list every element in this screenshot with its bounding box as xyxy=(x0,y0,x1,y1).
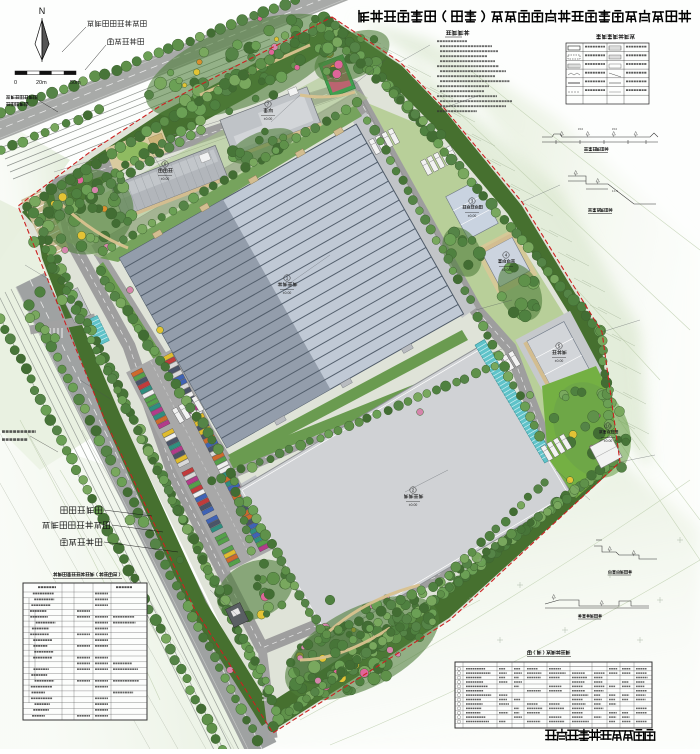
svg-text:50m: 50m xyxy=(70,80,81,86)
svg-text:15.0: 15.0 xyxy=(612,127,618,131)
svg-text:±0.00: ±0.00 xyxy=(283,291,292,295)
svg-text:1: 1 xyxy=(286,276,289,281)
svg-text:2: 2 xyxy=(412,488,415,493)
svg-text:±0.00: ±0.00 xyxy=(502,268,511,272)
svg-text:±0.00: ±0.00 xyxy=(468,214,477,218)
svg-text:±0.00: ±0.00 xyxy=(161,177,170,181)
svg-text:±0.00: ±0.00 xyxy=(409,503,418,507)
svg-text:5: 5 xyxy=(558,344,561,349)
svg-text:N: N xyxy=(39,6,46,16)
svg-text:10: 10 xyxy=(605,424,611,429)
svg-text:±0.00: ±0.00 xyxy=(264,117,273,121)
svg-text:20m: 20m xyxy=(36,80,47,86)
svg-text:4: 4 xyxy=(505,253,508,258)
svg-text:7: 7 xyxy=(267,102,270,107)
svg-text:1:1.5: 1:1.5 xyxy=(612,189,618,193)
svg-text:±0.00: ±0.00 xyxy=(604,439,613,443)
svg-text:±0.00: ±0.00 xyxy=(555,359,564,363)
svg-text:0: 0 xyxy=(14,80,17,86)
svg-text:15.0: 15.0 xyxy=(578,127,584,131)
svg-text:3: 3 xyxy=(471,199,474,204)
svg-text:6: 6 xyxy=(164,162,167,167)
